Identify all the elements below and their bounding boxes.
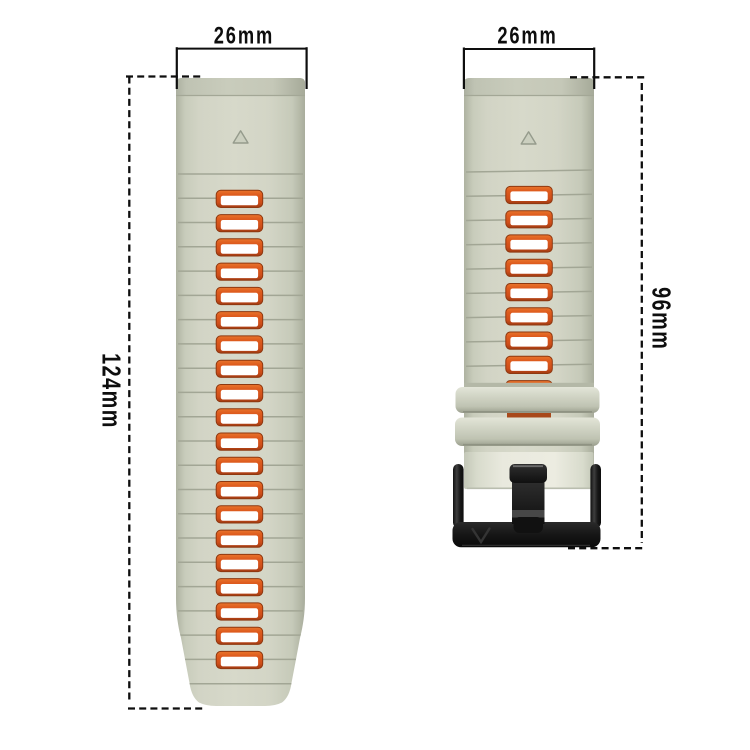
svg-text:26mm: 26mm xyxy=(214,21,274,49)
svg-text:26mm: 26mm xyxy=(497,21,557,49)
svg-text:124mm: 124mm xyxy=(97,353,126,429)
svg-text:96mm: 96mm xyxy=(647,287,676,350)
